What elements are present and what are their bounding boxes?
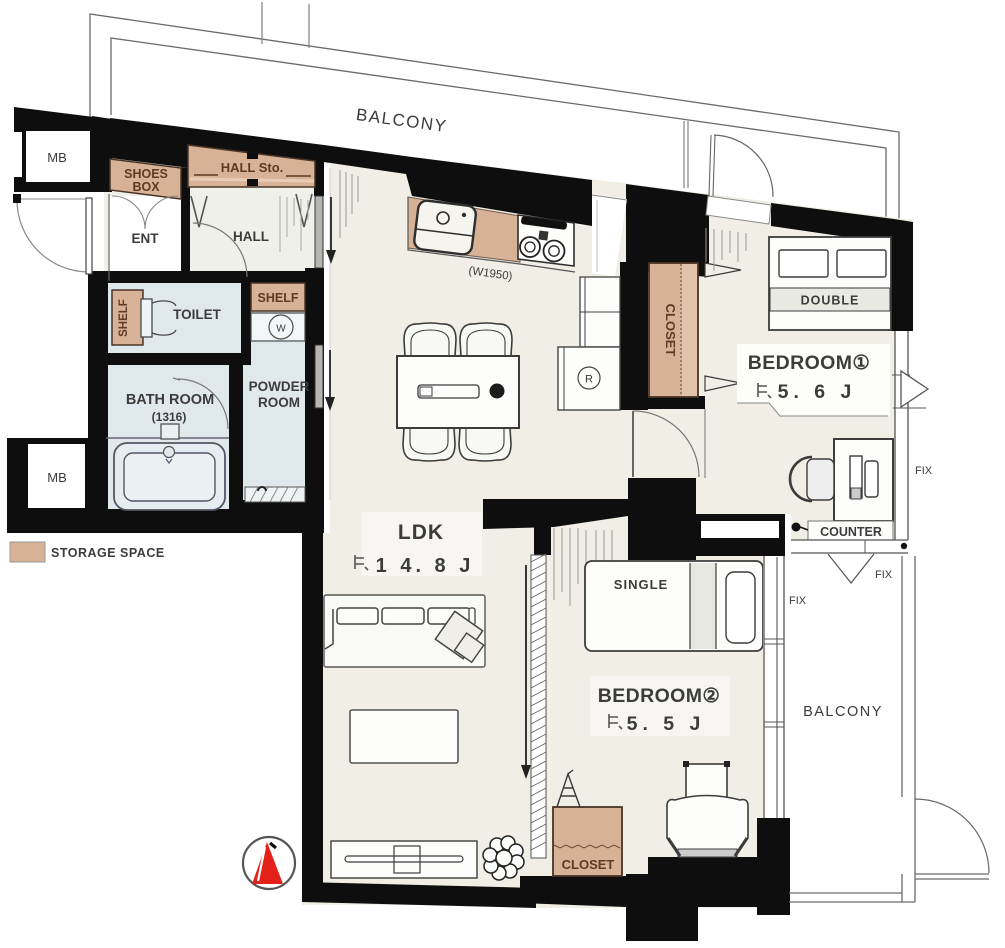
svg-text:SHELF: SHELF	[258, 291, 299, 305]
svg-text:BEDROOM②: BEDROOM②	[598, 685, 721, 707]
svg-text:MB: MB	[47, 150, 67, 165]
svg-text:SHELF: SHELF	[118, 299, 130, 337]
svg-text:BEDROOM①: BEDROOM①	[748, 352, 871, 374]
svg-text:MB: MB	[47, 470, 67, 485]
svg-text:FIX: FIX	[875, 569, 893, 581]
svg-text:HALL: HALL	[233, 229, 269, 244]
svg-text:SINGLE: SINGLE	[614, 577, 668, 592]
svg-text:ROOM: ROOM	[258, 395, 300, 410]
svg-text:5. 5 J: 5. 5 J	[627, 713, 706, 735]
svg-text:COUNTER: COUNTER	[820, 525, 882, 539]
svg-text:ENT: ENT	[132, 231, 160, 246]
svg-text:1 4. 8 J: 1 4. 8 J	[376, 555, 475, 577]
svg-text:BATH ROOM: BATH ROOM	[126, 392, 214, 408]
svg-text:DOUBLE: DOUBLE	[801, 294, 860, 308]
svg-text:SHOES: SHOES	[124, 167, 168, 181]
svg-text:R: R	[585, 374, 593, 386]
svg-text:BALCONY: BALCONY	[803, 704, 883, 720]
svg-text:LDK: LDK	[398, 521, 444, 544]
svg-text:POWDER: POWDER	[249, 379, 310, 394]
svg-text:5. 6 J: 5. 6 J	[778, 381, 857, 403]
svg-text:CLOSET: CLOSET	[663, 304, 678, 357]
svg-text:W: W	[276, 324, 286, 335]
svg-text:CLOSET: CLOSET	[562, 857, 615, 872]
svg-text:BOX: BOX	[132, 180, 160, 194]
svg-text:FIX: FIX	[789, 595, 807, 607]
svg-text:HALL Sto.: HALL Sto.	[221, 160, 284, 175]
svg-text:(1316): (1316)	[152, 410, 187, 424]
svg-text:FIX: FIX	[915, 465, 933, 477]
svg-text:TOILET: TOILET	[173, 307, 222, 322]
svg-text:STORAGE SPACE: STORAGE SPACE	[51, 546, 165, 560]
